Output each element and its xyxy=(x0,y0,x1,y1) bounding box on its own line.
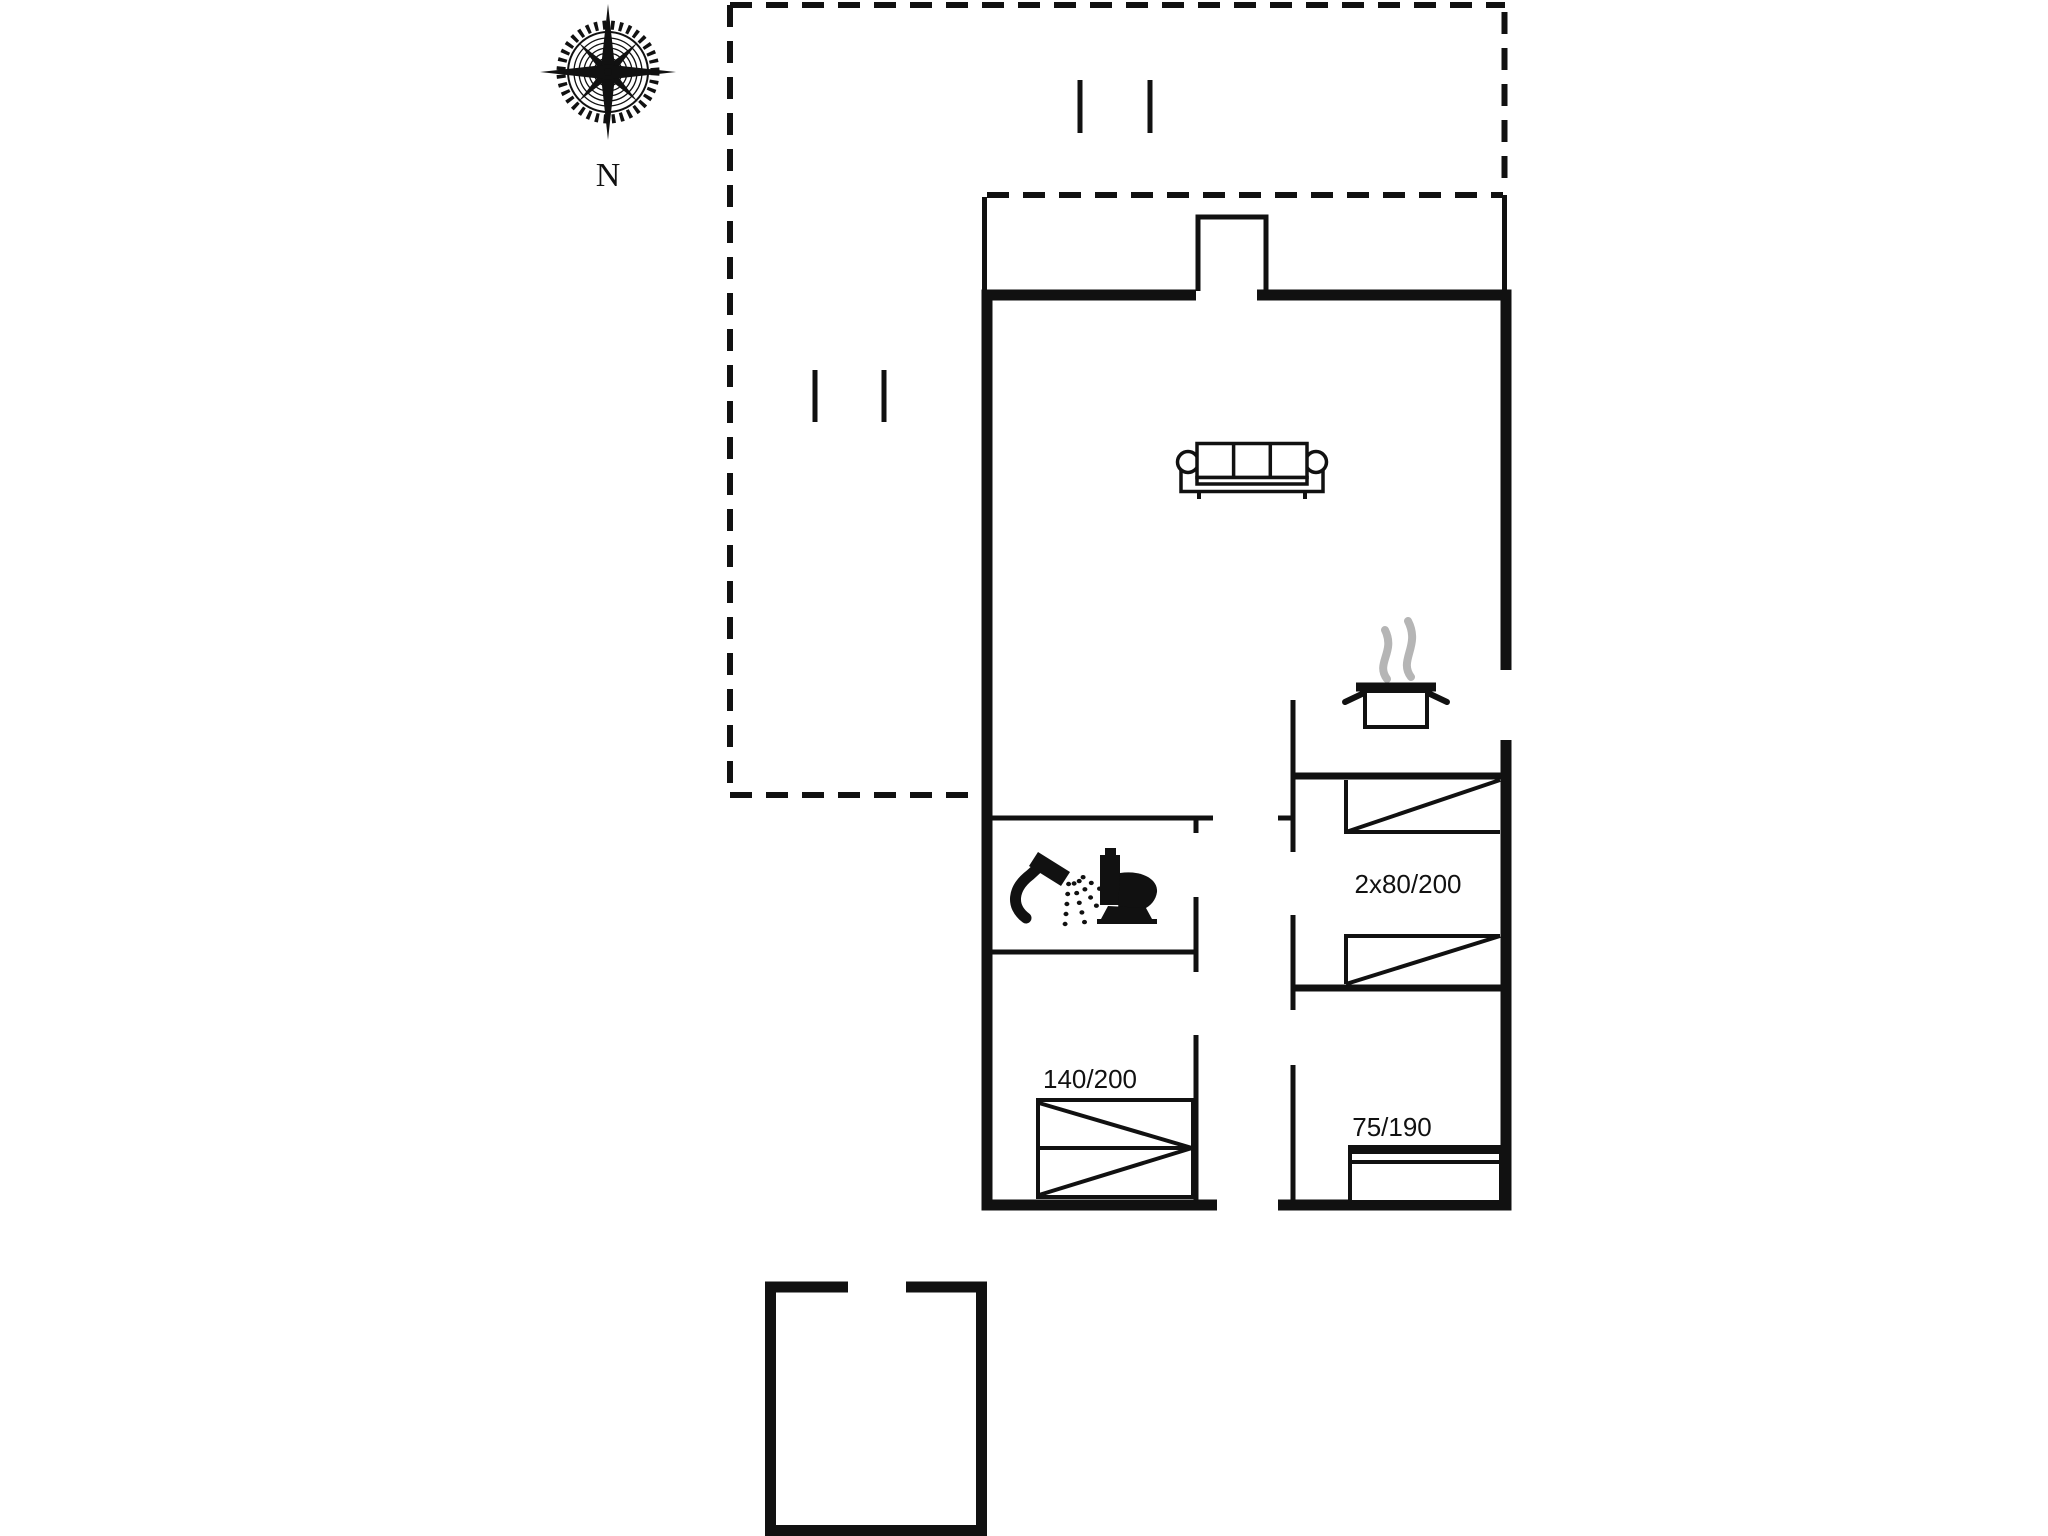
floor-plan-svg: N xyxy=(0,0,2048,1536)
bed-size-label-single: 75/190 xyxy=(1352,1112,1432,1142)
compass-rose-icon xyxy=(540,4,676,140)
shower-spray xyxy=(1063,875,1102,926)
toilet-icon xyxy=(1097,848,1157,924)
bed-icon xyxy=(1346,780,1500,832)
bed-size-label-twin: 2x80/200 xyxy=(1355,869,1462,899)
north-label: N xyxy=(596,157,621,194)
sofa-icon xyxy=(1178,444,1327,500)
bed-icon xyxy=(1346,936,1500,984)
floor-plan-page: N xyxy=(0,0,2048,1536)
shower-icon xyxy=(1015,852,1102,926)
bedroom-single-bed xyxy=(1350,1147,1501,1202)
kitchen-stove xyxy=(1345,621,1447,727)
bedroom-double-bed xyxy=(1038,1100,1193,1197)
bed-size-label-double: 140/200 xyxy=(1043,1064,1137,1094)
steam-icon xyxy=(1383,621,1412,679)
entrance-door-recess xyxy=(1198,217,1266,291)
shed-outline xyxy=(765,1282,987,1536)
cooking-pot-icon xyxy=(1345,687,1447,727)
entrance-vestibule xyxy=(985,195,1505,292)
